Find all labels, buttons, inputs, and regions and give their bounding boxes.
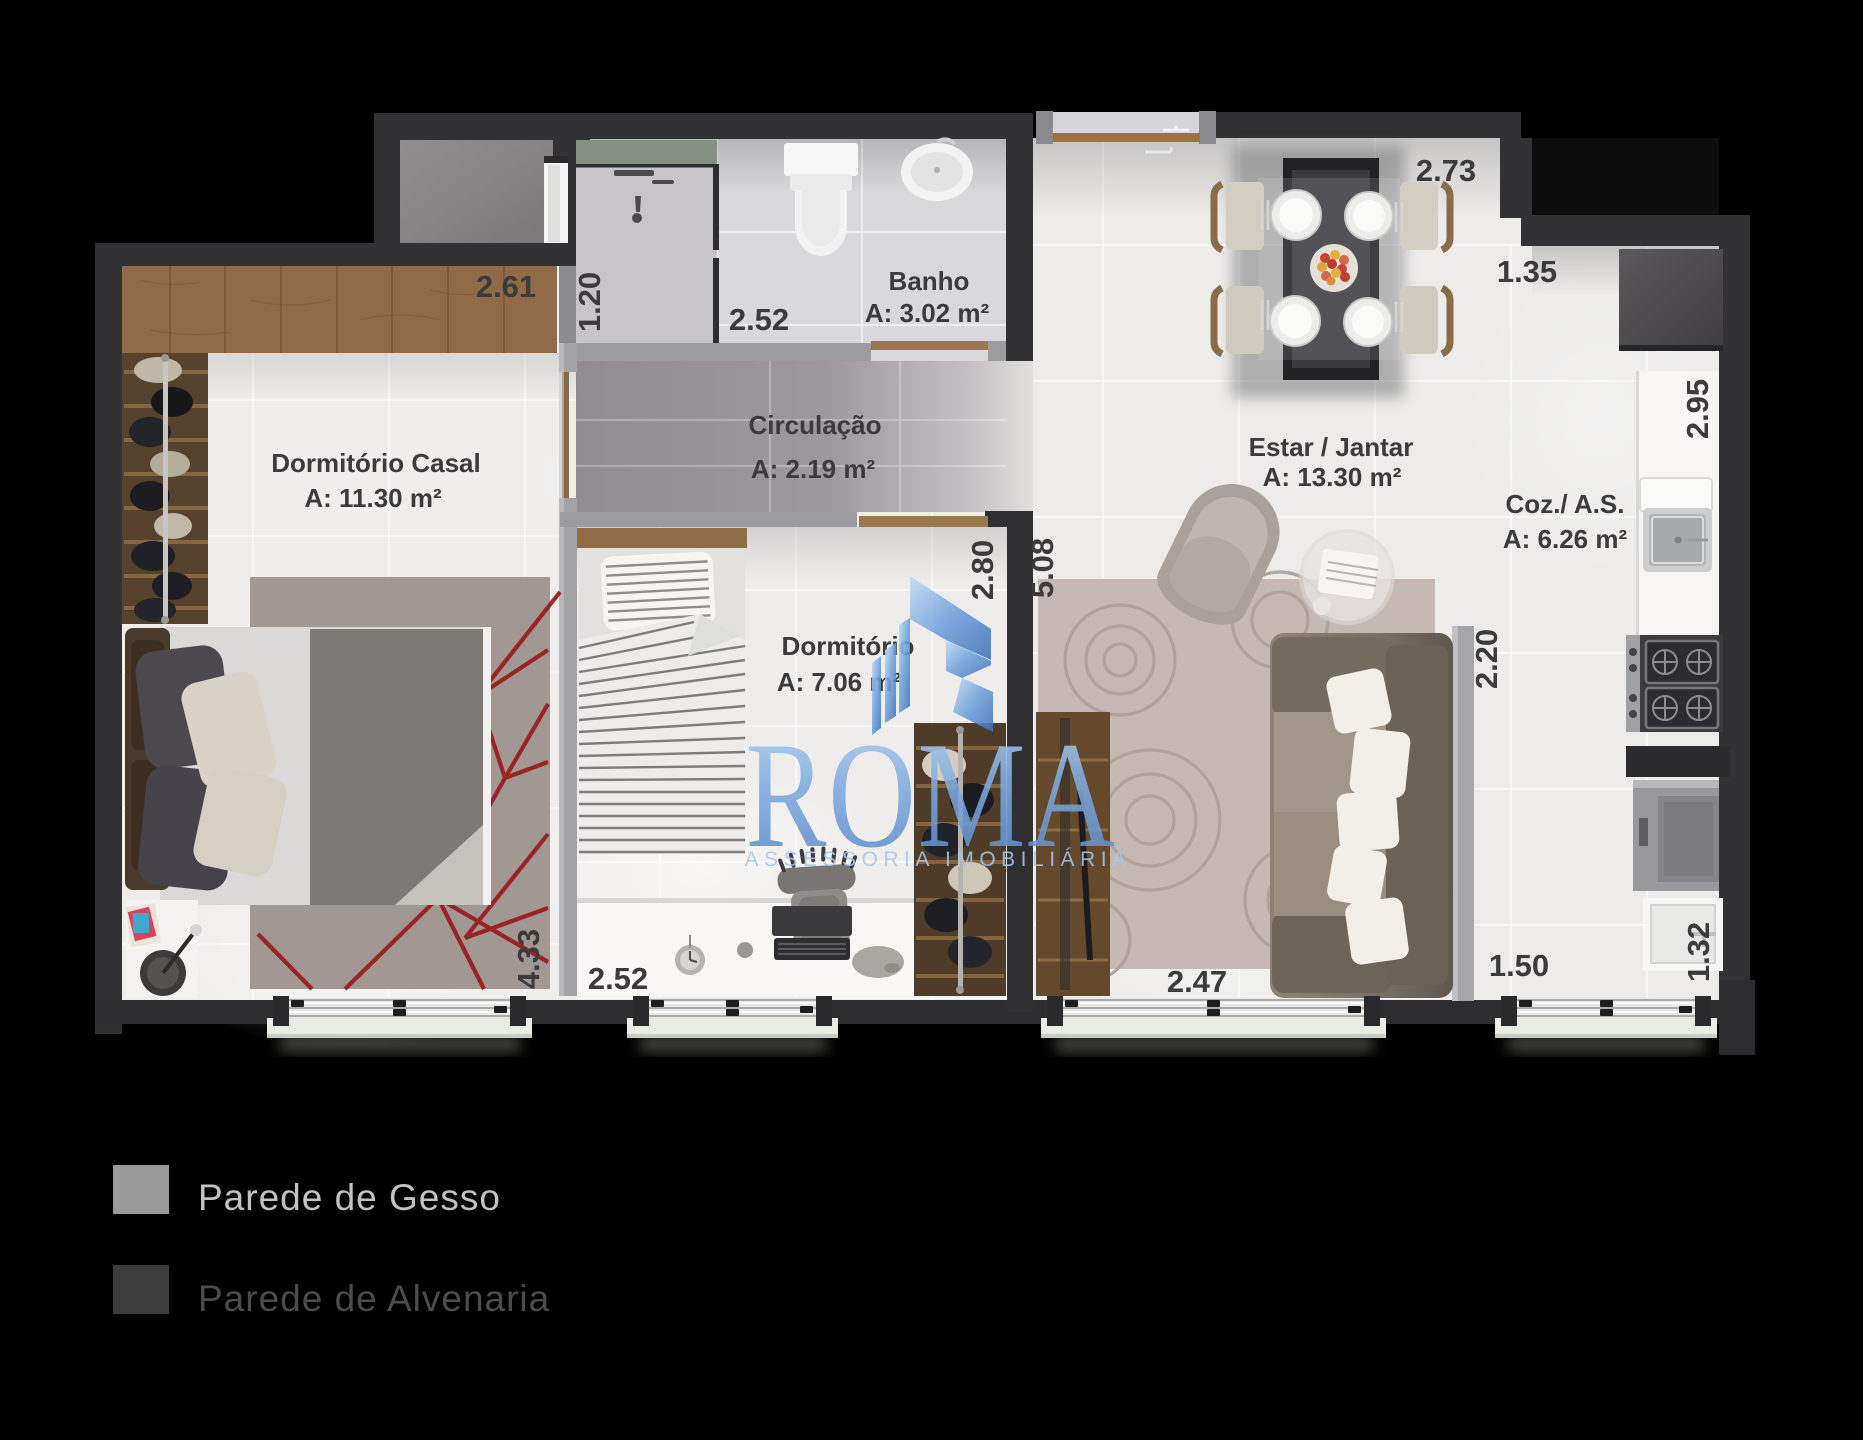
svg-text:2.73: 2.73 <box>1416 153 1476 188</box>
svg-text:A: 3.02 m²: A: 3.02 m² <box>865 298 990 328</box>
svg-text:1.35: 1.35 <box>1497 254 1557 289</box>
svg-text:ASSESSORIA IMOBILIÁRIA: ASSESSORIA IMOBILIÁRIA <box>744 848 1131 871</box>
svg-text:2.80: 2.80 <box>965 540 1000 600</box>
svg-text:2.20: 2.20 <box>1469 629 1504 689</box>
svg-text:2.47: 2.47 <box>1167 964 1227 999</box>
svg-text:A: 7.06 m²: A: 7.06 m² <box>777 667 902 697</box>
svg-text:A: 13.30 m²: A: 13.30 m² <box>1263 462 1402 492</box>
svg-text:Estar / Jantar: Estar / Jantar <box>1249 432 1414 462</box>
svg-text:4.33: 4.33 <box>511 929 546 989</box>
svg-text:Coz./ A.S.: Coz./ A.S. <box>1506 489 1625 519</box>
svg-text:A: 6.26 m²: A: 6.26 m² <box>1503 524 1628 554</box>
svg-text:5.08: 5.08 <box>1025 538 1060 598</box>
svg-text:A: 2.19 m²: A: 2.19 m² <box>751 454 876 484</box>
svg-text:1.50: 1.50 <box>1489 948 1549 983</box>
svg-text:Banho: Banho <box>889 266 970 296</box>
svg-text:Circulação: Circulação <box>749 410 882 440</box>
svg-text:2.61: 2.61 <box>476 269 536 304</box>
svg-text:A: 11.30 m²: A: 11.30 m² <box>304 483 442 513</box>
svg-text:Dormitório Casal: Dormitório Casal <box>271 448 481 478</box>
svg-text:Parede de Gesso: Parede de Gesso <box>198 1177 501 1218</box>
svg-text:2.52: 2.52 <box>729 302 789 337</box>
svg-text:Parede de Alvenaria: Parede de Alvenaria <box>198 1278 550 1319</box>
svg-text:1.20: 1.20 <box>572 272 607 332</box>
svg-text:1.32: 1.32 <box>1681 922 1716 982</box>
svg-text:2.52: 2.52 <box>588 961 648 996</box>
svg-text:2.95: 2.95 <box>1680 379 1715 439</box>
